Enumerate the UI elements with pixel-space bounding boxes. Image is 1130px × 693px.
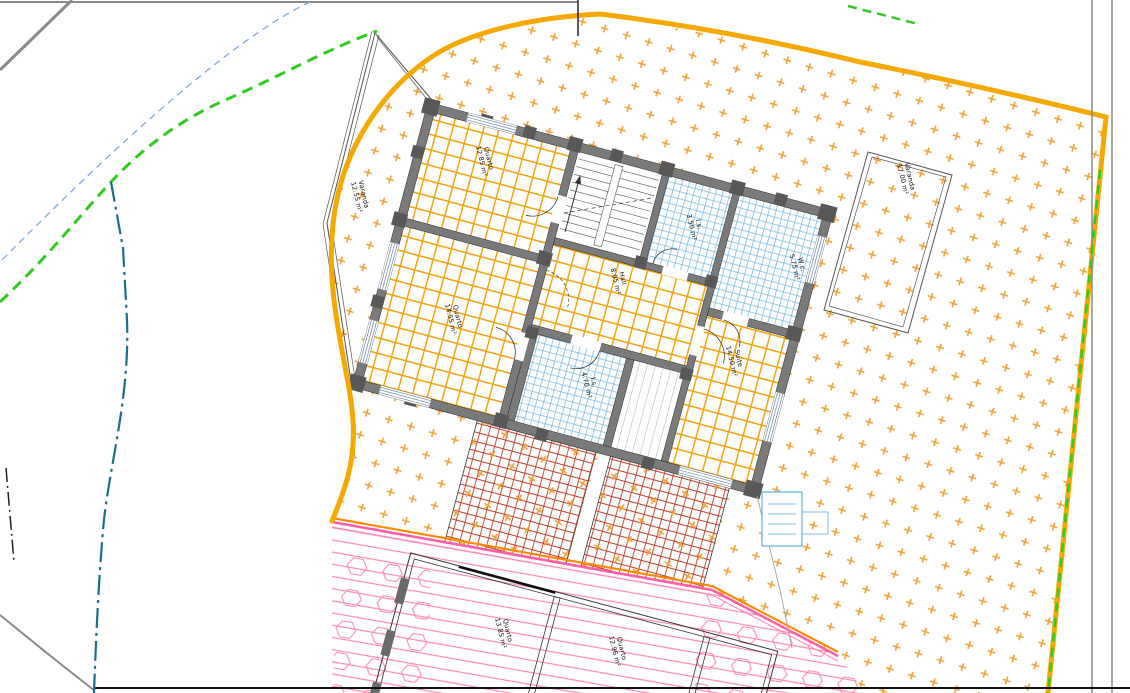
hex-hatch-left — [334, 540, 430, 693]
utility-line-teal — [94, 182, 127, 693]
parcel-line-green-topright — [848, 6, 918, 24]
parcel-line-green-dashed — [0, 31, 377, 302]
cad-viewport: Quarto 12.85 m² Varanda 12.55 m² Varanda… — [0, 0, 1130, 693]
floor-plan-canvas: Quarto 12.85 m² Varanda 12.55 m² Varanda… — [0, 0, 1130, 693]
parcel-line-blue-dashed — [0, 2, 310, 262]
boundary-line-black-dashdot — [6, 468, 14, 562]
